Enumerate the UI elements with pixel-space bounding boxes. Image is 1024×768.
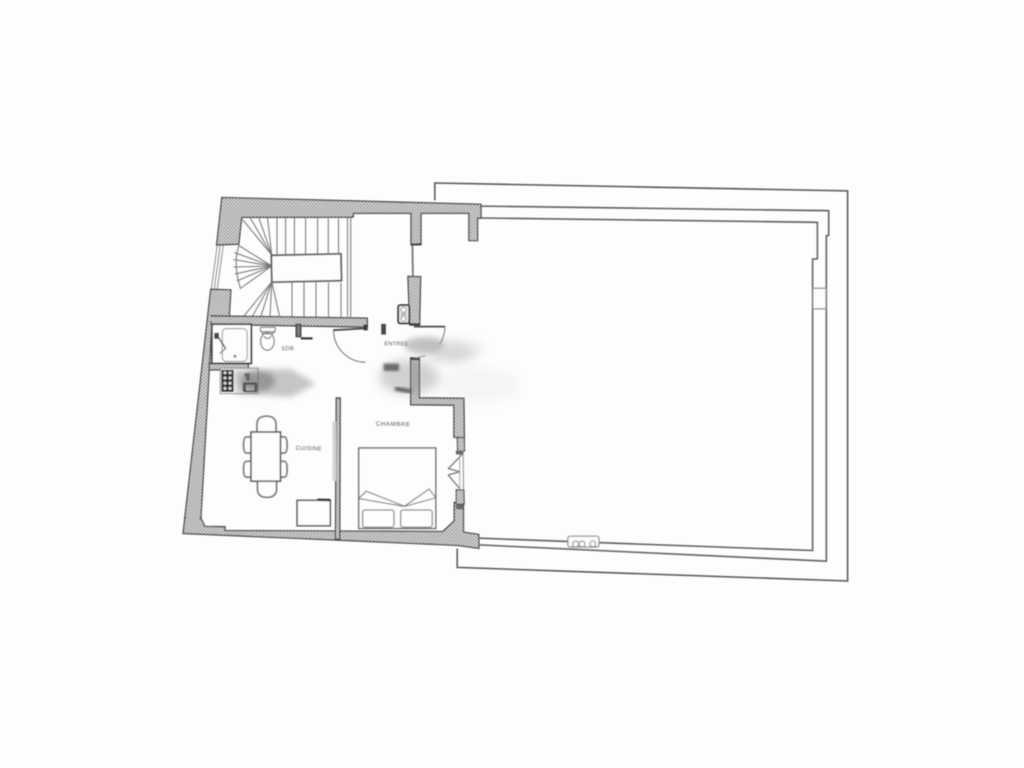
- svg-text:CUISINE: CUISINE: [296, 446, 322, 453]
- svg-text:CHAMBRE: CHAMBRE: [376, 421, 411, 429]
- svg-text:SDB: SDB: [281, 346, 294, 352]
